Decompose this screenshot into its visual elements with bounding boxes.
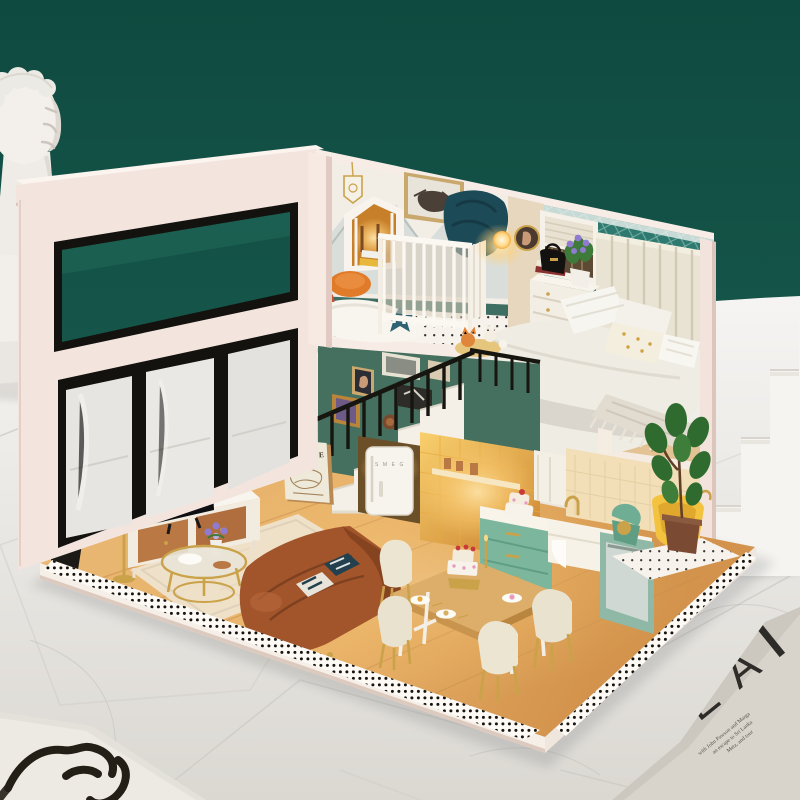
fridge-nook: S M E G bbox=[358, 436, 422, 524]
fridge-logo: S M E G bbox=[375, 462, 405, 468]
retro-fridge: S M E G bbox=[366, 447, 413, 515]
scene-canvas: E R E A with John Pawson and Marga an es… bbox=[0, 0, 800, 800]
dishwasher bbox=[600, 532, 654, 634]
round-portrait bbox=[514, 225, 540, 251]
stand-mixer bbox=[612, 504, 641, 546]
candle-flame bbox=[484, 535, 488, 542]
product-photo-scene: E R E A with John Pawson and Marga an es… bbox=[0, 0, 800, 800]
